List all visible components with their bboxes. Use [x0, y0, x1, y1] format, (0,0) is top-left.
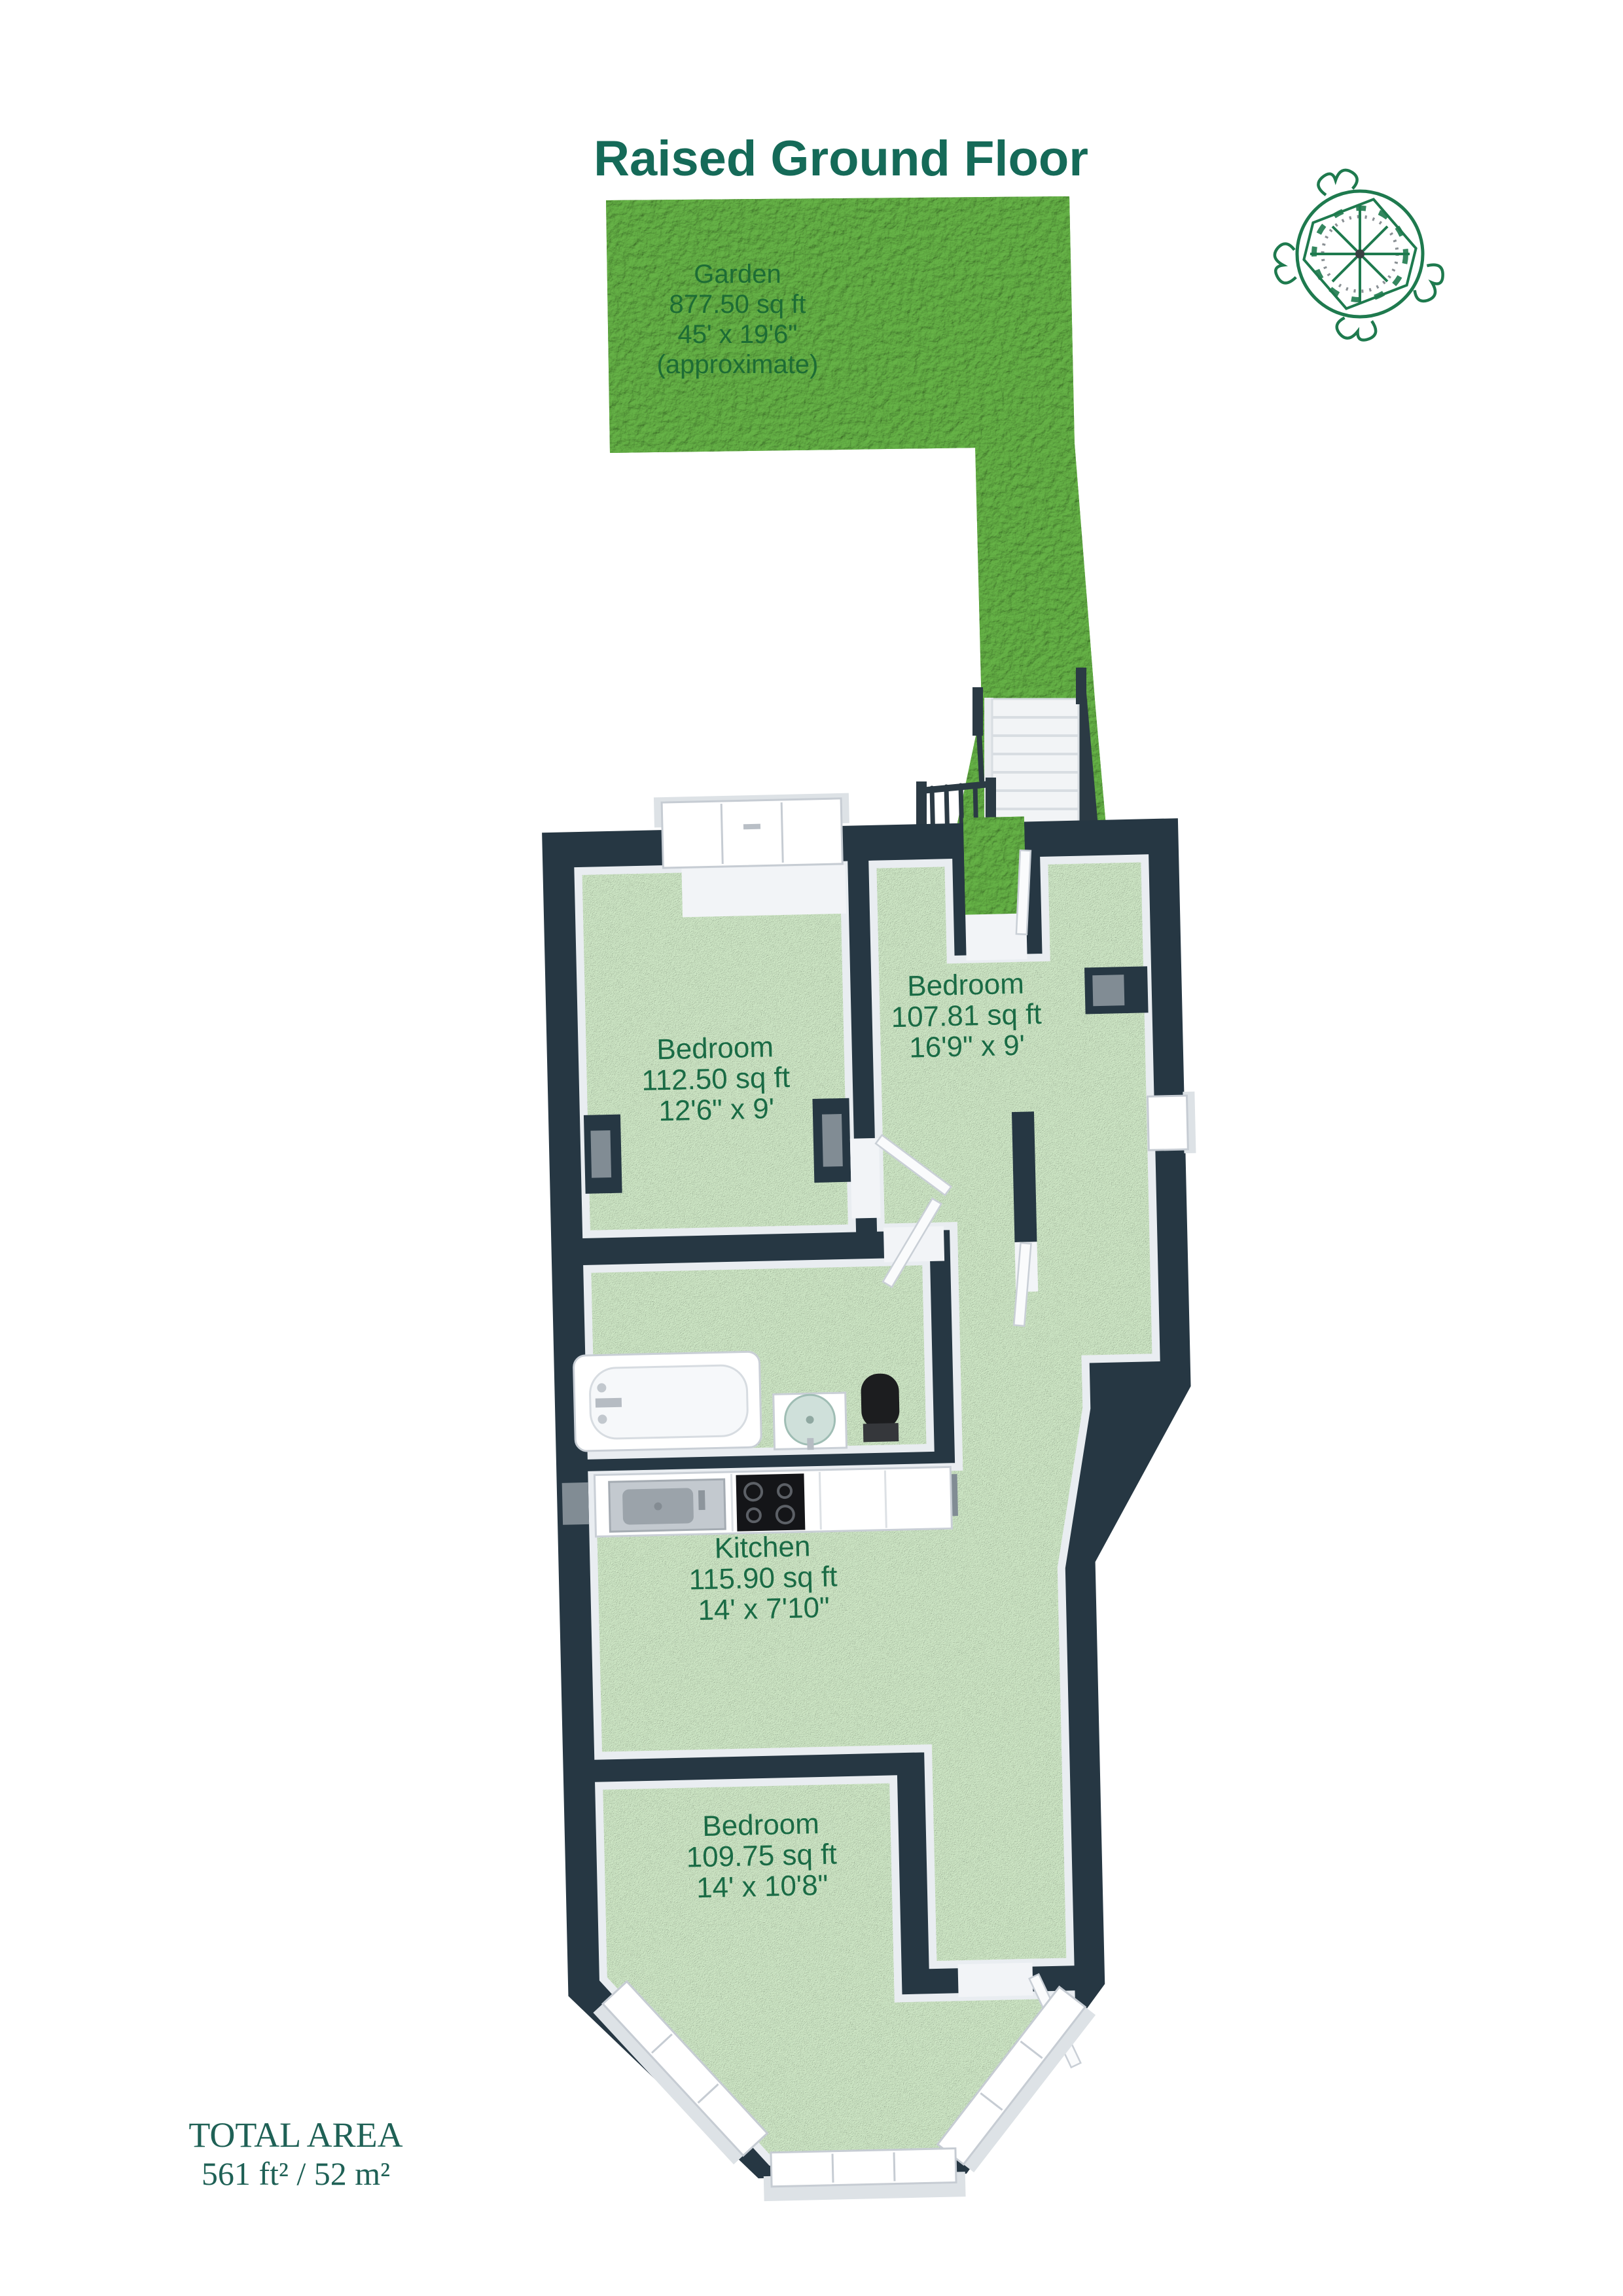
bedroom1-window: [654, 793, 851, 918]
bedroom-1-label: Bedroom: [656, 1031, 774, 1066]
floorplan-page: Raised Ground Floor Garden 877.50 sq ft …: [0, 0, 1623, 2296]
bedroom-2-dimensions: 16'9" x 9': [909, 1030, 1026, 1064]
garden-area-label: 877.50 sq ft: [669, 290, 806, 319]
garden-note-label: (approximate): [657, 350, 819, 379]
bedroom-2-area: 107.81 sq ft: [891, 998, 1042, 1033]
kitchen-hob: [736, 1473, 805, 1531]
kitchen-counter: [594, 1467, 952, 1536]
building: Bedroom 112.50 sq ft 12'6" x 9' Bedroom …: [541, 785, 1219, 2206]
bedroom-1-dimensions: 12'6" x 9': [658, 1092, 775, 1127]
bedroom2-side-window: [1147, 1092, 1196, 1155]
kitchen-dimensions: 14' x 7'10": [698, 1592, 830, 1627]
bathtub: [573, 1352, 761, 1451]
total-area-label: TOTAL AREA: [188, 2115, 402, 2155]
total-area: TOTAL AREA 561 ft² / 52 m²: [188, 2115, 402, 2192]
kitchen-sink: [609, 1479, 726, 1532]
entry-vestibule: [963, 816, 1033, 960]
bathroom-sink: [774, 1393, 847, 1450]
bedroom-3-area: 109.75 sq ft: [686, 1838, 837, 1873]
kitchen-area: 115.90 sq ft: [688, 1560, 838, 1596]
floorplan-canvas: Raised Ground Floor Garden 877.50 sq ft …: [0, 0, 1623, 2296]
bedroom-3-label: Bedroom: [702, 1808, 820, 1842]
toilet: [861, 1373, 900, 1442]
compass-icon: [1268, 162, 1445, 345]
garden-label: Garden: [694, 260, 781, 289]
total-area-value: 561 ft² / 52 m²: [202, 2155, 390, 2192]
bedroom2-partition-wall: [1012, 1111, 1037, 1242]
bedroom-2-label: Bedroom: [907, 968, 1025, 1003]
kitchen-label: Kitchen: [714, 1530, 811, 1564]
garden-dimensions-label: 45' x 19'6": [678, 320, 798, 349]
bedroom-3-dimensions: 14' x 10'8": [696, 1869, 829, 1905]
bedroom-1-area: 112.50 sq ft: [641, 1062, 791, 1097]
page-title: Raised Ground Floor: [594, 131, 1088, 187]
bay-window-bottom: [763, 2148, 966, 2201]
wall-recess-left: [562, 1482, 589, 1525]
